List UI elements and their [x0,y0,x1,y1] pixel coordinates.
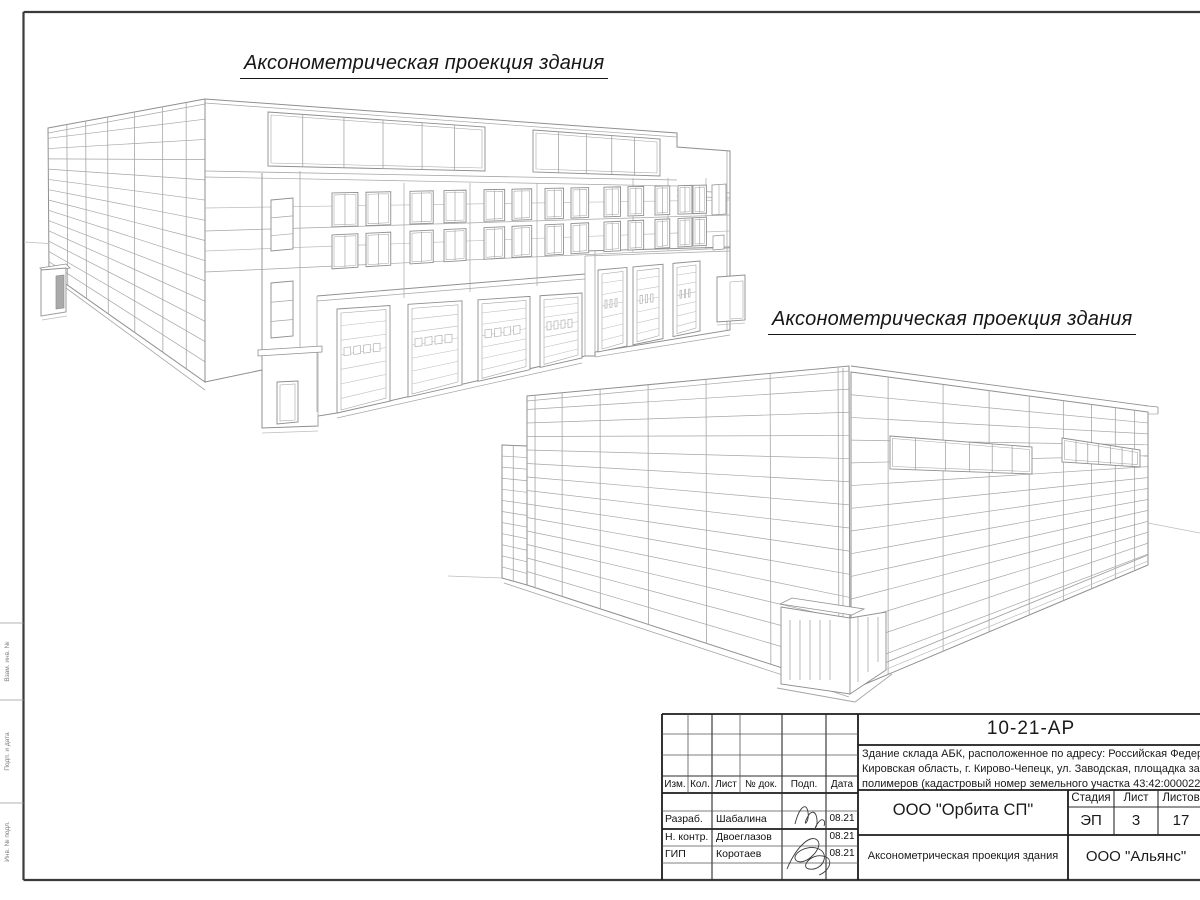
row-name: Коротаев [716,848,761,860]
sheet-number: 3 [1114,812,1158,829]
project-description-line: полимеров (кадастровый номер земельного … [862,777,1200,792]
signature-shabalina [795,807,825,828]
row-role: ГИП [665,848,686,860]
sheets-label: Листов [1158,792,1200,804]
project-description-line: Кировская область, г. Кирово-Чепецк, ул.… [862,762,1200,777]
row-date: 08.21 [826,831,858,842]
col-header-data: Дата [826,779,858,790]
row-role: Разраб. [665,813,703,825]
col-header-kol: Кол. [688,779,712,790]
side-stamp: Взам. инв. № Подп. и дата Инв. № подл. [0,623,24,862]
row-role: Н. контр. [665,831,708,843]
col-header-docno: № док. [740,779,782,790]
col-header-podp: Подп. [782,779,826,790]
signature-korotaev-dvoeglazov [787,839,830,875]
side-stamp-label: Инв. № подл. [4,821,11,862]
building-2-axonometric-drawing [448,366,1200,702]
drawing-sheet: { "drawing_titles": { "view_1": "Аксоном… [0,0,1200,900]
col-header-izm: Изм. [662,779,688,790]
row-name: Двоеглазов [716,831,772,843]
row-date: 08.21 [826,813,858,824]
building-1-axonometric-drawing [24,99,745,433]
developer-org: ООО "Орбита СП" [858,801,1068,820]
view-title-1: Аксонометрическая проекция здания [240,52,580,79]
sheet-caption: Аксонометрическая проекция здания [858,850,1068,862]
row-date: 08.21 [826,848,858,859]
col-header-list: Лист [712,779,740,790]
sheet-label: Лист [1114,792,1158,804]
document-number: 10-21-АР [858,718,1200,740]
side-stamp-label: Взам. инв. № [4,641,11,681]
project-description-line: Здание склада АБК, расположенное по адре… [862,747,1200,762]
contractor-org: ООО "Альянс" [1068,848,1200,865]
side-stamp-label: Подп. и дата [4,732,11,771]
sheets-total: 17 [1158,812,1200,829]
stage-value: ЭП [1068,812,1114,829]
row-name: Шабалина [716,813,767,825]
stage-label: Стадия [1068,792,1114,804]
view-title-2: Аксонометрическая проекция здания [768,308,1128,335]
signatures [787,807,830,875]
